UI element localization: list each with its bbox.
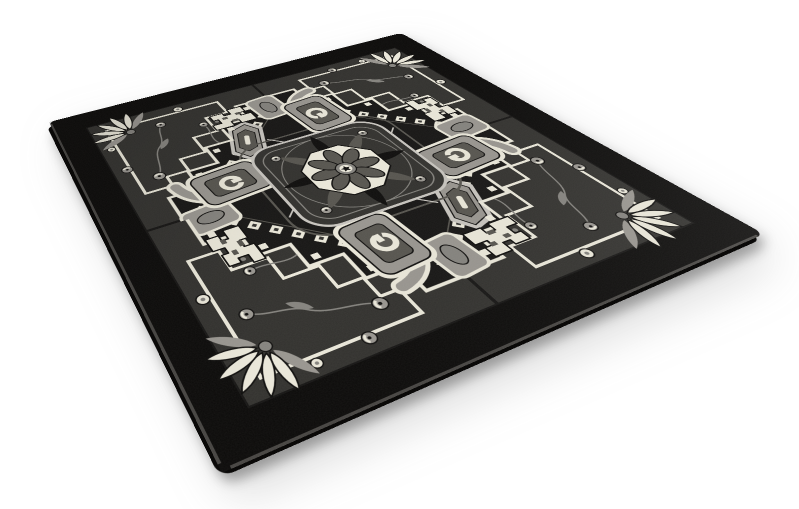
rug-render [49,33,764,473]
rug-shadow-wrapper [0,0,799,509]
render-canvas [0,0,799,509]
weave-grain [49,33,764,473]
rug-design [49,33,764,473]
